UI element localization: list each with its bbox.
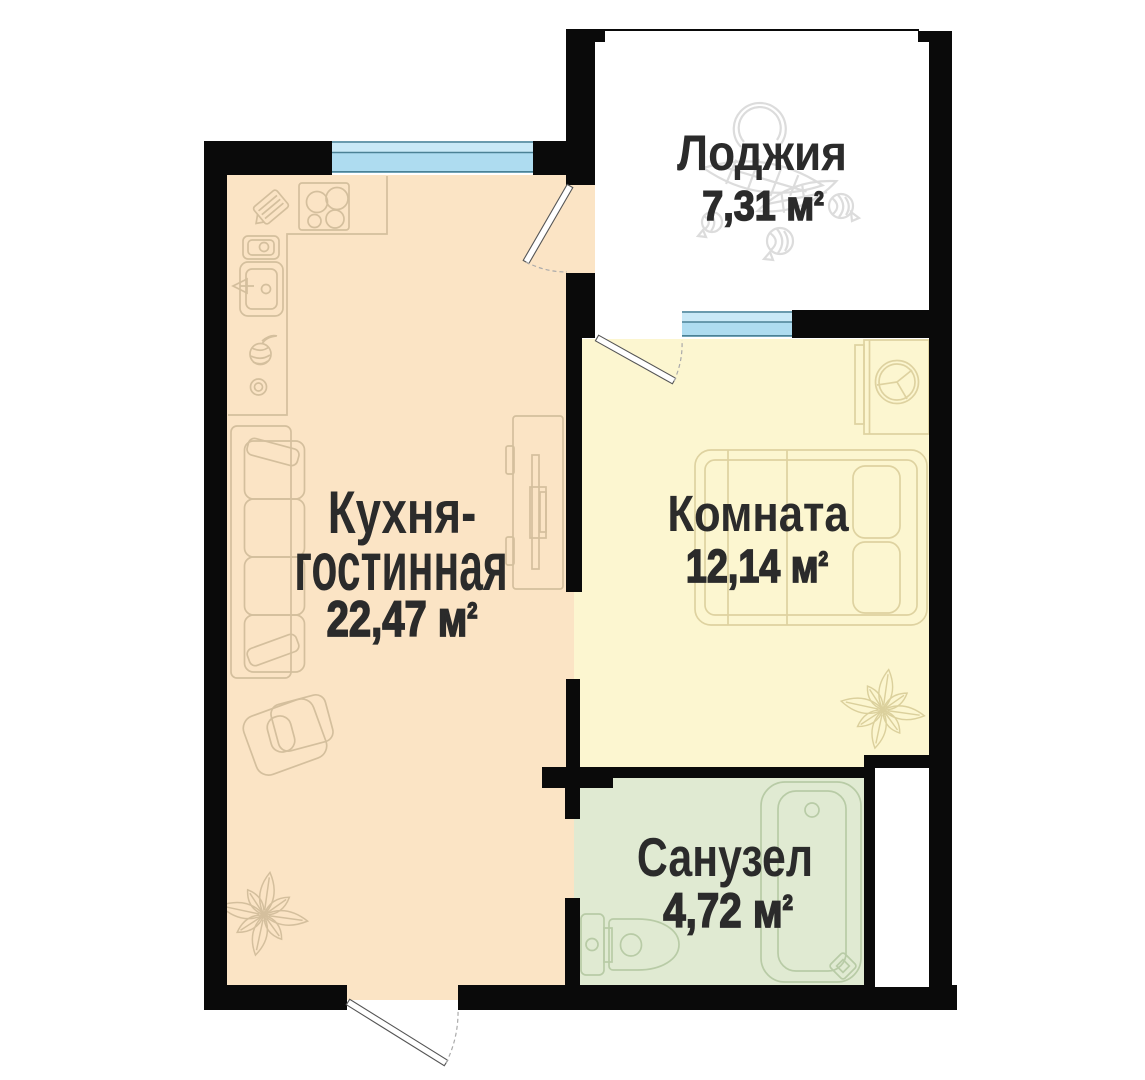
svg-text:Санузел: Санузел — [637, 827, 813, 888]
svg-text:12,14 м2: 12,14 м2 — [686, 540, 828, 591]
svg-text:7,31 м2: 7,31 м2 — [702, 183, 823, 229]
svg-text:Комната: Комната — [667, 486, 849, 543]
svg-text:Лоджия: Лоджия — [677, 126, 847, 182]
svg-text:4,72 м2: 4,72 м2 — [663, 885, 793, 938]
svg-text:22,47 м2: 22,47 м2 — [327, 591, 478, 647]
